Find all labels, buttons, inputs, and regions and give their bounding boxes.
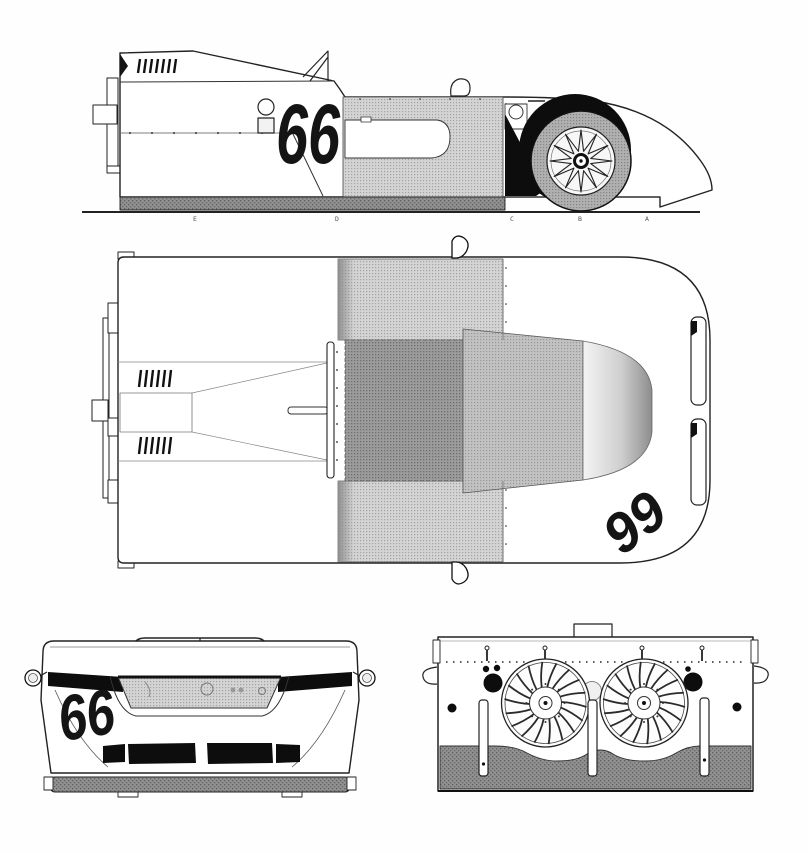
blueprint-canvas: 66 E D C B A (0, 0, 808, 853)
mirror-bottom (452, 562, 468, 584)
strut-pin-right (703, 758, 706, 761)
side-skirt (120, 197, 505, 210)
engine-cover-mid (463, 329, 583, 493)
ground-label-b: B (578, 215, 582, 223)
fuel-cap-circle (258, 99, 274, 115)
side-view: 66 E D C B A (82, 51, 712, 223)
strut-pin-left (482, 762, 485, 765)
windshield-mesh (118, 677, 281, 708)
front-view: 66 (25, 638, 375, 797)
top-view: 66 (92, 236, 710, 584)
hook-left (423, 667, 437, 684)
strip-edge-shade-upper (338, 259, 354, 340)
engine-bay-dark (345, 340, 467, 481)
top-mesh-strip-lower (338, 481, 503, 562)
front-cap-circle (509, 105, 523, 119)
drive-shaft (288, 407, 328, 414)
access-panel-square (258, 118, 274, 133)
mesh-inset-panel (345, 120, 450, 158)
tail-light-left (448, 704, 457, 713)
top-mesh-strip-upper (338, 259, 503, 340)
mirror-scoop (451, 79, 470, 96)
strip-edge-shade-lower (338, 481, 354, 562)
front-skirt (50, 777, 350, 792)
suction-fan-right (600, 659, 688, 747)
gearbox-outline (120, 393, 192, 432)
ground-label-c: C (510, 215, 514, 223)
ground-labels: E D C B A (193, 215, 649, 223)
racing-number-front: 66 (53, 675, 120, 755)
ground-label-d: D (335, 215, 339, 223)
hook-right (754, 666, 768, 683)
tail-light-right (733, 703, 742, 712)
racing-number-side: 66 (276, 87, 341, 181)
rear-view (423, 624, 768, 791)
ground-label-e: E (193, 215, 197, 223)
ground-label-a: A (645, 215, 649, 223)
mesh-latch (361, 117, 371, 122)
rear-bumper-plates (93, 78, 120, 173)
mirror-top (452, 236, 468, 258)
suction-fan-left (502, 659, 590, 747)
wing-pylon-plate (327, 342, 334, 478)
